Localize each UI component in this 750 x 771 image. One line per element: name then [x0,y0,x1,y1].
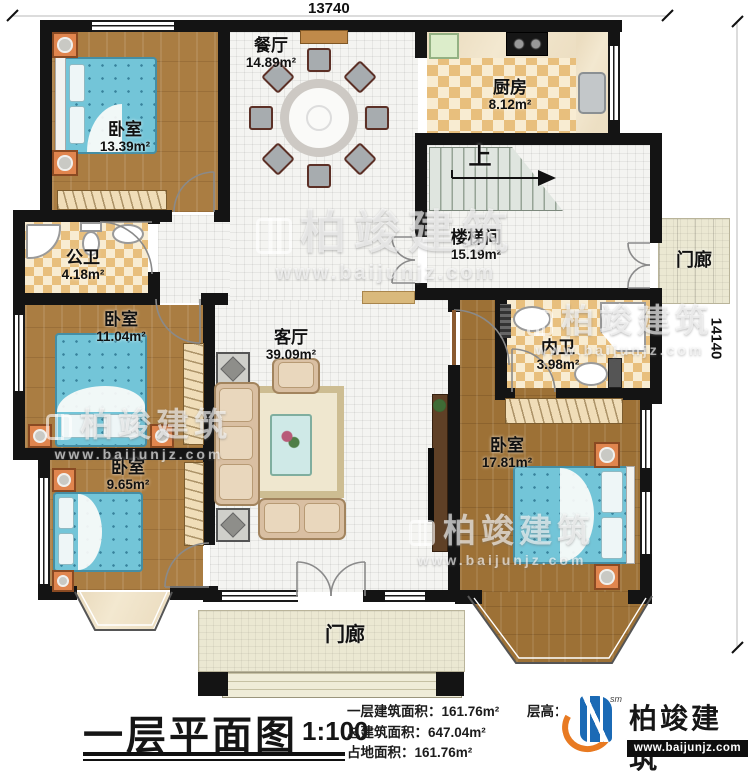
chair [249,106,273,130]
dimension-top: 13740 [308,0,350,17]
dimension-tick [732,642,743,653]
kitchen-sink [578,72,606,114]
bed-pillow [61,414,97,438]
bed-pillow [103,414,139,438]
room-label-bath-inner: 内卫 3.98m² [516,338,600,372]
wardrobe [183,343,204,445]
tv [428,448,434,522]
porch-steps [222,672,462,698]
wall [650,145,662,243]
nightstand [52,468,76,492]
wall [455,590,482,604]
room-label-kitchen: 厨房 8.12m² [466,78,554,112]
dimension-tick [662,10,673,21]
room-label-dining: 餐厅 14.89m² [228,36,314,70]
sofa-cushion [219,388,253,422]
area-stats: 一层建筑面积：161.76m² 总建筑面积：647.04m² 占地面积：161.… [347,702,499,764]
window [222,590,298,602]
dining-table-center [306,105,332,131]
toilet-tank [608,358,622,388]
title-underline [83,752,345,756]
sofa-cushion [219,426,253,460]
window [13,315,25,391]
dimension-tick [7,10,18,21]
bed-headboard [55,57,66,154]
wall [214,210,230,222]
window [385,590,425,602]
window [38,478,50,584]
sofa-cushion [304,503,340,533]
floor-hall [158,215,230,303]
window [640,492,652,554]
nightstand [150,424,174,448]
room-label-bedroom-bl: 卧室 9.65m² [84,458,172,492]
wall [650,288,662,398]
window [608,46,620,120]
dimension-tick [732,16,743,27]
wall [415,288,662,300]
brand-logo: sm 柏竣建筑 www.baijunjz.com [558,686,750,768]
window [640,410,652,468]
wall [148,210,160,224]
sofa-cushion [278,362,314,388]
logo-building [580,696,612,742]
bay-window-floor-br [468,592,652,663]
wall [40,20,52,212]
stat-row: 总建筑面积：647.04m² [347,723,499,744]
window [92,20,174,32]
wall [13,293,159,305]
room-label-bedroom-ml: 卧室 11.04m² [76,310,166,344]
bed-pillow [601,471,623,513]
wardrobe [57,190,167,210]
plant [433,399,446,412]
brand-logo-url: www.baijunjz.com [627,740,748,757]
room-label-bedroom-br: 卧室 17.81m² [462,436,552,470]
bay-window-floor-bl [75,592,172,630]
bed-pillow [58,533,74,565]
brand-logo-text: 柏竣建筑 [629,697,750,771]
vanity [500,304,511,338]
wall [415,133,662,145]
bed-pillow [601,517,623,559]
room-label-porch-right: 门廊 [658,250,730,270]
room-label-living: 客厅 39.09m² [244,328,338,362]
sofa-cushion [264,503,300,533]
dimension-right: 14140 [707,318,724,360]
room-label-bedroom-tl: 卧室 13.39m² [75,120,175,154]
title-underline [83,759,345,761]
bed-pillow [58,497,74,529]
wall [203,590,222,602]
stat-row: 一层建筑面积：161.76m² [347,702,499,723]
porch-pillar [198,672,228,696]
logo-mark: sm [610,694,622,704]
room-label-stairwell: 楼梯间 15.19m² [428,228,524,262]
wall [415,20,427,58]
bathroom-sink [112,224,144,244]
sofa-cushion [219,464,253,500]
wall [415,145,427,237]
nightstand [594,564,620,590]
brand-logo-icon: sm [562,694,622,756]
bed-pillow [69,64,85,102]
end-table [216,508,250,542]
threshold [362,291,415,304]
wardrobe [505,398,623,424]
nightstand [52,570,74,592]
wall [448,300,460,312]
wall [448,365,460,602]
nightstand [52,32,78,58]
bed-headboard [626,466,635,564]
stove [506,32,548,56]
chair [307,164,331,188]
porch-pillar [436,672,464,696]
room-label-porch-bottom: 门廊 [300,624,390,646]
room-label-bath-public: 公卫 4.18m² [44,248,122,282]
table-flowers [280,428,300,452]
floorplan-canvas: 卧室 13.39m² 餐厅 14.89m² 厨房 8.12m² 楼梯间 15.1… [0,0,750,771]
bathroom-sink [513,306,551,332]
nightstand [28,424,52,448]
fridge [429,33,459,59]
chair [365,106,389,130]
wall [628,590,652,604]
nightstand [594,442,620,468]
stairs-up-label: 上 [462,144,498,170]
stat-row: 占地面积：161.76m² [347,743,499,764]
wall [13,210,25,305]
tv-cabinet [432,394,448,552]
wall [363,590,385,602]
wardrobe [184,462,204,546]
